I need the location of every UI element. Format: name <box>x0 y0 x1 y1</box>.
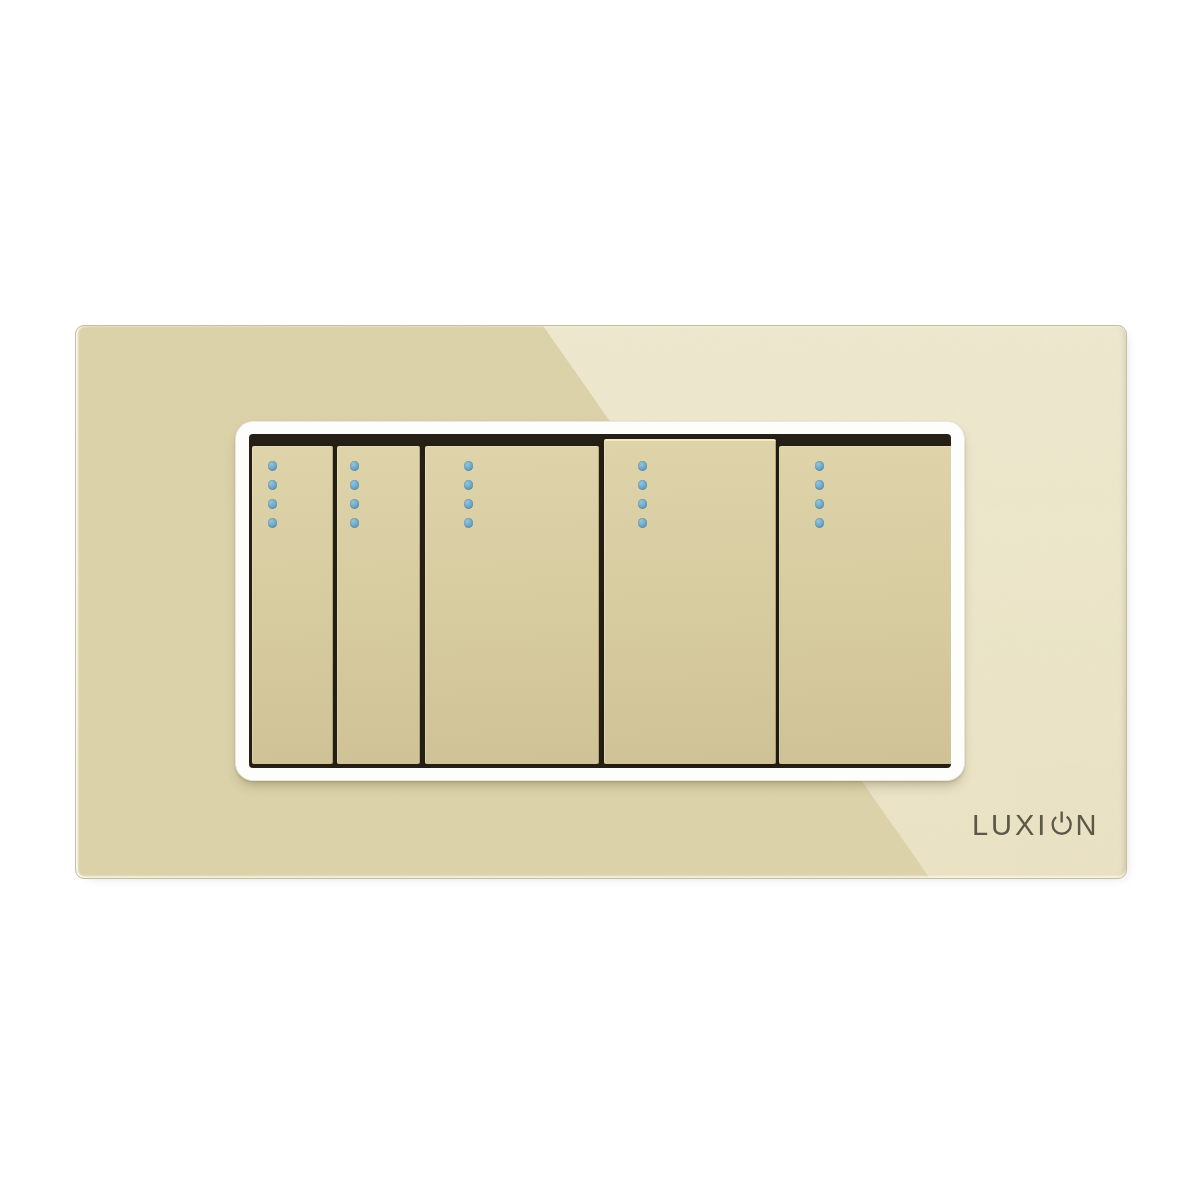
led-indicator-dot <box>350 480 359 490</box>
led-indicator-dot <box>815 518 824 528</box>
led-indicator-dot <box>268 499 277 509</box>
led-indicator-dot <box>350 499 359 509</box>
product-photo: LUXI N <box>0 0 1200 1200</box>
switch-rocker[interactable] <box>425 446 599 764</box>
brand-text-suffix: N <box>1075 808 1099 842</box>
led-indicator-dot <box>268 518 277 528</box>
led-indicator-dot <box>815 461 824 471</box>
switch-rocker[interactable] <box>604 439 776 764</box>
led-indicator-group <box>815 461 824 528</box>
led-indicator-group <box>464 461 473 528</box>
switch-rocker[interactable] <box>252 446 333 764</box>
switch-well <box>249 434 951 768</box>
brand-text-prefix: LUXI <box>972 808 1048 842</box>
switch-rocker[interactable] <box>779 446 951 764</box>
power-icon <box>1048 807 1074 837</box>
led-indicator-group <box>268 461 277 528</box>
led-indicator-dot <box>464 518 473 528</box>
led-indicator-dot <box>638 518 647 528</box>
led-indicator-dot <box>638 499 647 509</box>
led-indicator-dot <box>350 461 359 471</box>
led-indicator-dot <box>464 461 473 471</box>
led-indicator-group <box>350 461 359 528</box>
led-indicator-dot <box>350 518 359 528</box>
led-indicator-dot <box>638 480 647 490</box>
led-indicator-group <box>638 461 647 528</box>
led-indicator-dot <box>464 480 473 490</box>
glass-plate: LUXI N <box>75 325 1127 879</box>
led-indicator-dot <box>464 499 473 509</box>
led-indicator-dot <box>815 499 824 509</box>
led-indicator-dot <box>638 461 647 471</box>
led-indicator-dot <box>268 480 277 490</box>
switch-frame <box>235 421 965 781</box>
led-indicator-dot <box>815 480 824 490</box>
led-indicator-dot <box>268 461 277 471</box>
switch-rocker[interactable] <box>337 446 420 764</box>
brand-logo: LUXI N <box>972 808 1099 842</box>
